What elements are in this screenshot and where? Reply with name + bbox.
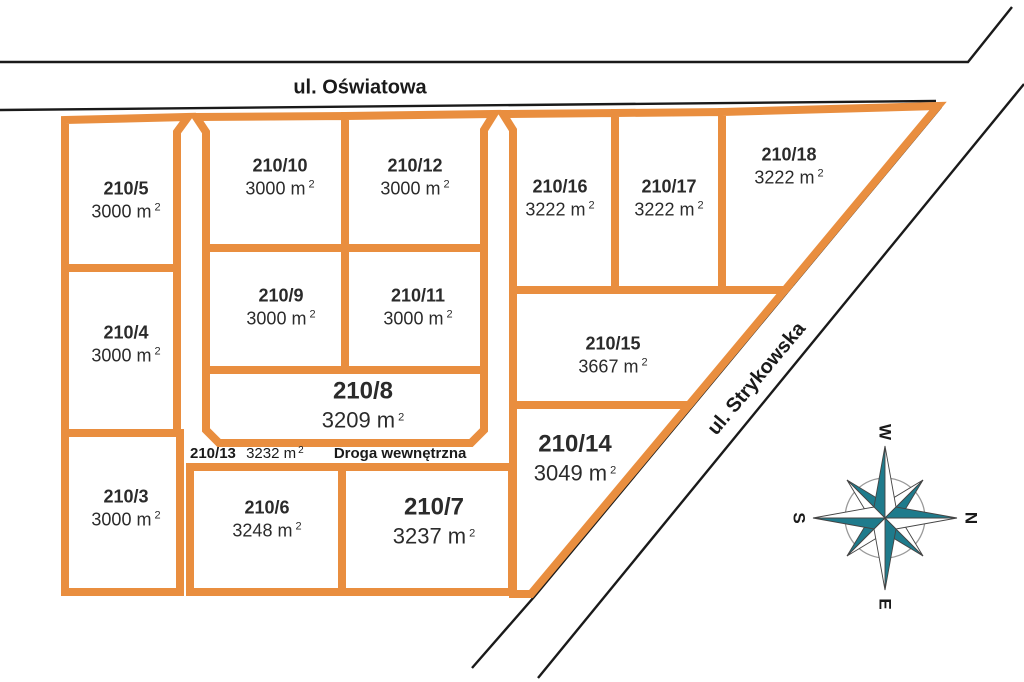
parcel-id: 210/10 [245, 155, 314, 178]
parcel-id: 210/17 [634, 176, 703, 199]
parcel-id: 210/18 [754, 144, 823, 167]
parcel-label-210-9: 210/9 3000 m2 [246, 285, 315, 330]
parcel-area: 3000 m2 [91, 200, 160, 223]
parcel-id: 210/16 [525, 176, 594, 199]
compass-label-east: E [876, 598, 895, 609]
compass-label-west: W [876, 424, 895, 441]
parcel-area: 3000 m2 [246, 307, 315, 330]
parcel-id: 210/3 [91, 486, 160, 509]
parcel-area: 3667 m2 [578, 355, 647, 378]
parcel-label-210-5: 210/5 3000 m2 [91, 178, 160, 223]
parcel-area: 3000 m2 [91, 508, 160, 531]
compass-label-south: S [790, 512, 809, 523]
parcel-label-210-11: 210/11 3000 m2 [383, 285, 452, 330]
parcel-id: 210/11 [383, 285, 452, 308]
street-label-oswiatowa: ul. Oświatowa [293, 77, 426, 100]
parcel-id: 210/4 [91, 322, 160, 345]
parcel-area: 3209 m2 [322, 406, 405, 434]
parcel-area: 3222 m2 [634, 198, 703, 221]
parcel-id: 210/8 [322, 376, 405, 406]
parcel-id: 210/12 [380, 155, 449, 178]
compass-point-right [885, 507, 957, 529]
internal-road-id: 210/13 [190, 445, 236, 462]
parcel-area: 3000 m2 [245, 177, 314, 200]
parcel-label-210-10: 210/10 3000 m2 [245, 155, 314, 200]
internal-road-label: 210/13 3232 m2 Droga wewnętrzna [190, 445, 466, 462]
parcel-label-210-16: 210/16 3222 m2 [525, 176, 594, 221]
parcel-label-210-14: 210/14 3049 m2 [534, 429, 617, 487]
internal-road-area: 3232 m2 [246, 445, 304, 462]
parcel-area: 3222 m2 [525, 198, 594, 221]
parcel-id: 210/5 [91, 178, 160, 201]
parcel-map: W N E S ul. Oświatowa ul. Strykowska 210… [0, 0, 1024, 682]
parcel-label-210-7: 210/7 3237 m2 [393, 492, 476, 550]
compass-label-north: N [962, 512, 981, 524]
compass-rose: W N E S [790, 424, 981, 610]
parcel-id: 210/9 [246, 285, 315, 308]
parcel-label-210-12: 210/12 3000 m2 [380, 155, 449, 200]
compass-point-left [813, 507, 885, 529]
parcel-label-210-3: 210/3 3000 m2 [91, 486, 160, 531]
oswiatowa-road-north-edge [0, 7, 1012, 62]
compass-point-down [874, 518, 896, 590]
parcel-area: 3000 m2 [383, 307, 452, 330]
parcel-id: 210/6 [232, 497, 301, 520]
parcel-area: 3000 m2 [91, 344, 160, 367]
parcel-210-18 [722, 106, 938, 290]
parcel-area: 3237 m2 [393, 522, 476, 550]
parcel-id: 210/7 [393, 492, 476, 522]
parcel-id: 210/15 [578, 333, 647, 356]
parcel-area: 3222 m2 [754, 166, 823, 189]
parcel-label-210-18: 210/18 3222 m2 [754, 144, 823, 189]
internal-road-name: Droga wewnętrzna [334, 445, 467, 462]
parcel-label-210-4: 210/4 3000 m2 [91, 322, 160, 367]
parcel-area: 3000 m2 [380, 177, 449, 200]
parcel-area: 3049 m2 [534, 459, 617, 487]
parcel-label-210-6: 210/6 3248 m2 [232, 497, 301, 542]
parcel-area: 3248 m2 [232, 519, 301, 542]
compass-point-up [874, 446, 896, 518]
parcel-label-210-15: 210/15 3667 m2 [578, 333, 647, 378]
parcel-label-210-8: 210/8 3209 m2 [322, 376, 405, 434]
parcel-id: 210/14 [534, 429, 617, 459]
parcel-label-210-17: 210/17 3222 m2 [634, 176, 703, 221]
